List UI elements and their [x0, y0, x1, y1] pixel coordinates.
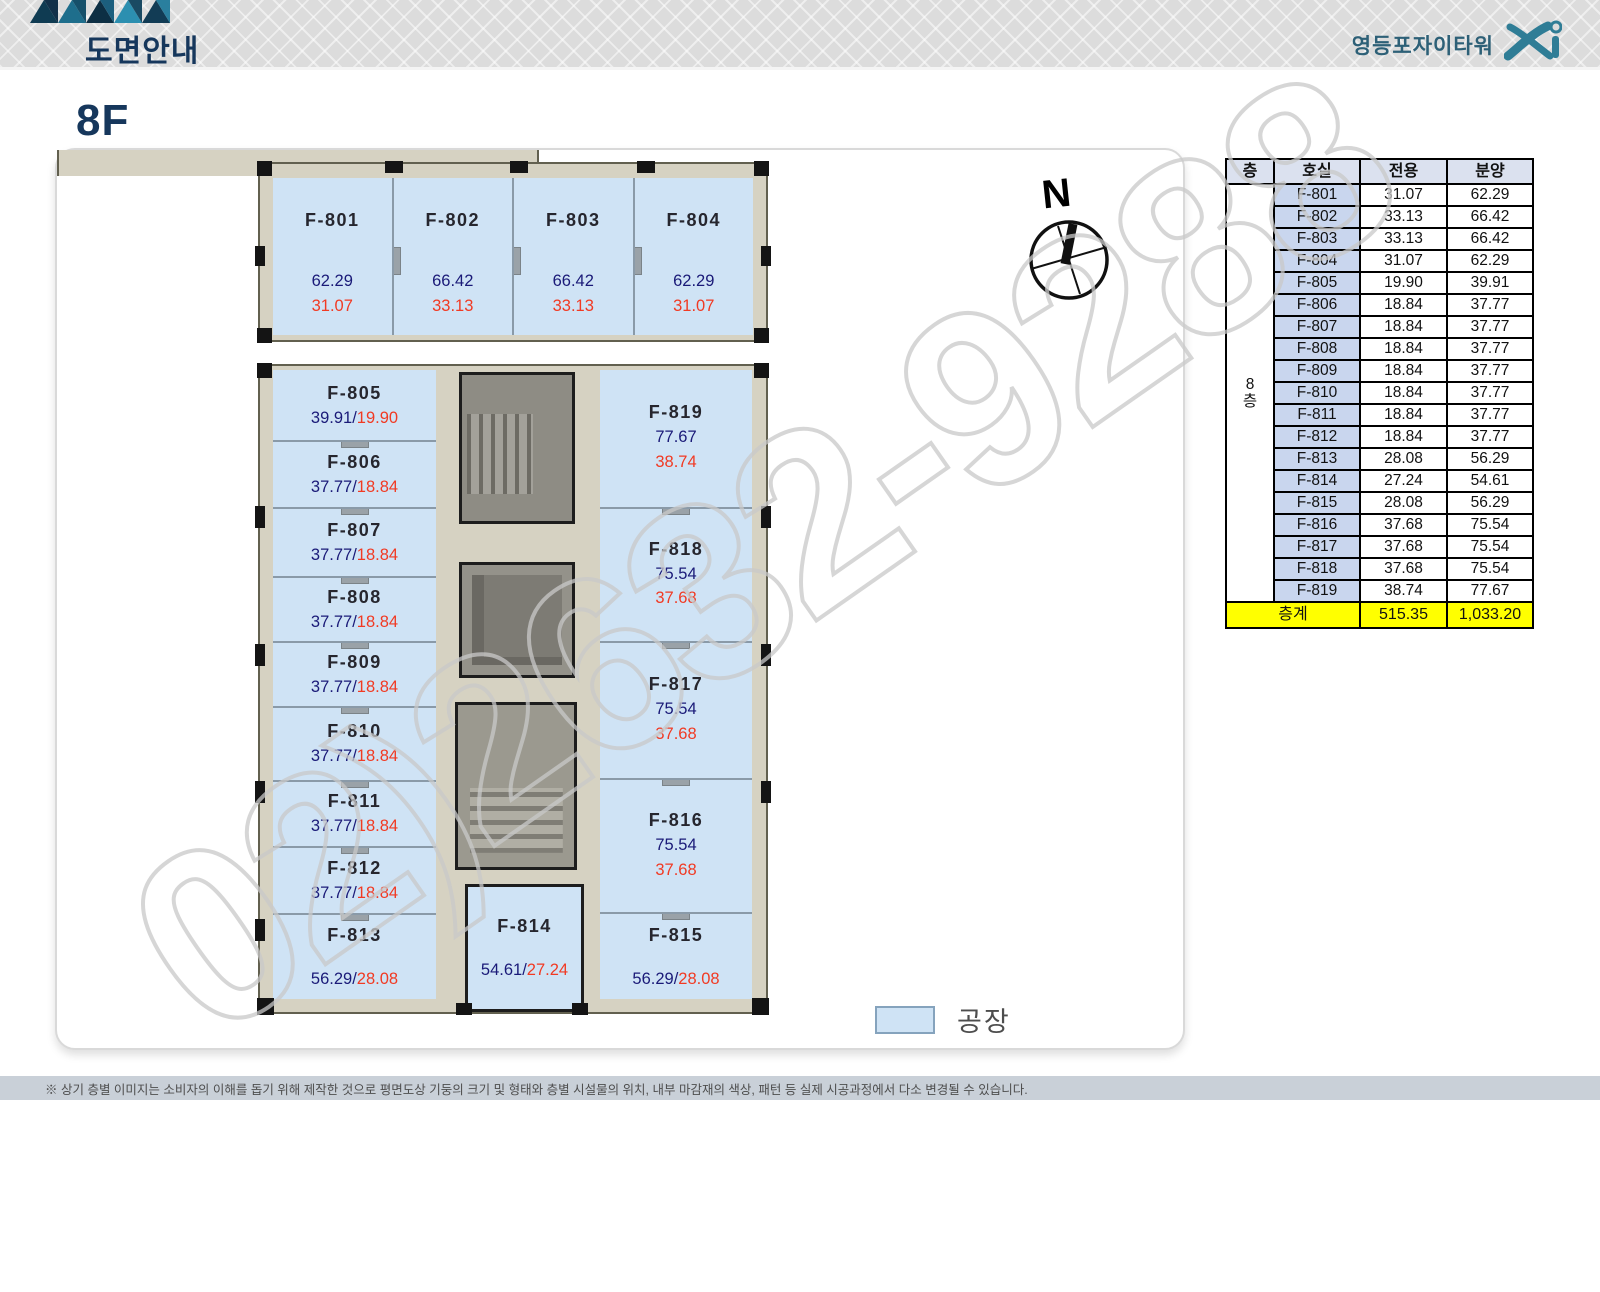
- room-cell: F-812: [1274, 426, 1360, 448]
- brand: 영등포자이타워: [1352, 18, 1562, 62]
- unit-areas: 37.77/18.84: [311, 546, 398, 565]
- footer-note: ※ 상기 층별 이미지는 소비자의 이해를 돕기 위해 제작한 것으로 평면도상…: [0, 1076, 1600, 1100]
- unit-areas: 62.2931.07: [312, 269, 353, 319]
- room-cell: F-802: [1274, 206, 1360, 228]
- unit-areas: 75.5437.68: [655, 833, 696, 883]
- exclusive-cell: 33.13: [1360, 228, 1447, 250]
- exclusive-cell: 28.08: [1360, 492, 1447, 514]
- unit-area-sale: 37.77: [311, 884, 352, 902]
- room-cell: F-819: [1274, 580, 1360, 602]
- page-title: 도면안내: [85, 26, 199, 70]
- unit-area-exclusive: 38.74: [655, 450, 696, 475]
- unit-name: F-813: [327, 925, 382, 946]
- brand-name: 영등포자이타워: [1352, 20, 1494, 60]
- unit-name: F-803: [546, 210, 601, 231]
- sale-cell: 37.77: [1447, 426, 1533, 448]
- unit-area-sale: 37.77: [311, 546, 352, 564]
- floor-plan: F-80162.2931.07F-80266.4233.13F-80366.42…: [57, 150, 1183, 1048]
- unit-name: F-804: [666, 210, 721, 231]
- unit-name: F-806: [327, 452, 382, 473]
- unit-area-sale: 39.91: [311, 409, 352, 427]
- total-row: 층계 515.35 1,033.20: [1226, 602, 1533, 628]
- unit-area-exclusive: 18.84: [357, 884, 398, 902]
- unit-name: F-802: [425, 210, 480, 231]
- room-cell: F-801: [1274, 184, 1360, 206]
- exclusive-cell: 31.07: [1360, 250, 1447, 272]
- exclusive-cell: 18.84: [1360, 426, 1447, 448]
- floor-heading: 8F: [76, 96, 129, 146]
- unit-area-exclusive: 27.24: [527, 961, 568, 979]
- unit-F-811: F-81137.77/18.84: [273, 782, 436, 846]
- header-band: 도면안내 영등포자이타워: [0, 0, 1600, 70]
- unit-areas: 66.4233.13: [432, 269, 473, 319]
- left-units: F-80539.91/19.90F-80637.77/18.84F-80737.…: [273, 370, 436, 999]
- unit-area-sale: 62.29: [673, 269, 714, 294]
- brand-triangles-icon: [30, 0, 170, 23]
- unit-name: F-801: [305, 210, 360, 231]
- unit-area-sale: 37.77: [311, 478, 352, 496]
- unit-F-813: F-81356.29/28.08: [273, 915, 436, 999]
- unit-areas: 77.6738.74: [655, 425, 696, 475]
- unit-areas: 56.29/28.08: [632, 970, 719, 989]
- area-table-body: 8층F-80131.0762.29F-80233.1366.42F-80333.…: [1226, 184, 1533, 602]
- sale-cell: 66.42: [1447, 206, 1533, 228]
- sale-cell: 37.77: [1447, 382, 1533, 404]
- unit-F-816: F-81675.5437.68: [600, 780, 752, 912]
- unit-F-807: F-80737.77/18.84: [273, 509, 436, 576]
- unit-areas: 37.77/18.84: [311, 817, 398, 836]
- unit-name: F-805: [327, 383, 382, 404]
- exclusive-cell: 18.84: [1360, 360, 1447, 382]
- unit-F-809: F-80937.77/18.84: [273, 643, 436, 705]
- unit-area-exclusive: 18.84: [357, 678, 398, 696]
- exclusive-cell: 33.13: [1360, 206, 1447, 228]
- sale-cell: 77.67: [1447, 580, 1533, 602]
- unit-area-sale: 37.77: [311, 747, 352, 765]
- unit-area-sale: 62.29: [312, 269, 353, 294]
- sale-cell: 62.29: [1447, 250, 1533, 272]
- sale-cell: 66.42: [1447, 228, 1533, 250]
- unit-area-sale: 37.77: [311, 613, 352, 631]
- unit-area-exclusive: 28.08: [678, 970, 719, 988]
- legend-label: 공장: [957, 1000, 1011, 1039]
- exclusive-cell: 27.24: [1360, 470, 1447, 492]
- unit-F-817: F-81775.5437.68: [600, 643, 752, 778]
- unit-name: F-810: [327, 721, 382, 742]
- exclusive-cell: 37.68: [1360, 514, 1447, 536]
- area-table-wrap: 층 호실 전용 분양 8층F-80131.0762.29F-80233.1366…: [1225, 158, 1534, 629]
- unit-F-804: F-80462.2931.07: [635, 178, 754, 335]
- unit-name: F-807: [327, 520, 382, 541]
- unit-name: F-808: [327, 587, 382, 608]
- top-units: F-80162.2931.07F-80266.4233.13F-80366.42…: [273, 178, 753, 335]
- floor-merged-cell: 8층: [1226, 184, 1274, 602]
- sale-cell: 37.77: [1447, 360, 1533, 382]
- unit-F-818: F-81875.5437.68: [600, 509, 752, 640]
- room-cell: F-809: [1274, 360, 1360, 382]
- unit-area-exclusive: 18.84: [357, 747, 398, 765]
- room-cell: F-817: [1274, 536, 1360, 558]
- unit-name: F-814: [497, 916, 552, 937]
- unit-area-exclusive: 37.68: [655, 586, 696, 611]
- core-utility-block: [455, 702, 577, 870]
- room-cell: F-815: [1274, 492, 1360, 514]
- unit-area-exclusive: 18.84: [357, 546, 398, 564]
- unit-F-814-slot: F-81454.61/27.24: [465, 884, 584, 1012]
- header-exclusive: 전용: [1360, 159, 1447, 184]
- unit-F-805: F-80539.91/19.90: [273, 370, 436, 440]
- unit-F-819: F-81977.6738.74: [600, 370, 752, 507]
- header-room: 호실: [1274, 159, 1360, 184]
- unit-area-sale: 56.29: [311, 970, 352, 988]
- unit-area-sale: 37.77: [311, 678, 352, 696]
- unit-area-exclusive: 31.07: [312, 294, 353, 319]
- room-cell: F-803: [1274, 228, 1360, 250]
- unit-area-sale: 56.29: [632, 970, 673, 988]
- unit-F-810: F-81037.77/18.84: [273, 708, 436, 780]
- unit-area-exclusive: 18.84: [357, 478, 398, 496]
- sale-cell: 75.54: [1447, 558, 1533, 580]
- unit-F-806: F-80637.77/18.84: [273, 442, 436, 506]
- unit-area-sale: 75.54: [655, 833, 696, 858]
- unit-areas: 62.2931.07: [673, 269, 714, 319]
- sale-cell: 56.29: [1447, 492, 1533, 514]
- xi-logo-icon: [1504, 18, 1562, 62]
- unit-area-exclusive: 31.07: [673, 294, 714, 319]
- unit-area-exclusive: 33.13: [553, 294, 594, 319]
- unit-name: F-819: [649, 402, 704, 423]
- exclusive-cell: 37.68: [1360, 536, 1447, 558]
- unit-area-exclusive: 28.08: [357, 970, 398, 988]
- room-cell: F-804: [1274, 250, 1360, 272]
- core-stairs-block: [459, 372, 575, 524]
- compass: N: [1012, 172, 1122, 322]
- exclusive-cell: 18.84: [1360, 382, 1447, 404]
- room-cell: F-816: [1274, 514, 1360, 536]
- exclusive-cell: 37.68: [1360, 558, 1447, 580]
- room-cell: F-818: [1274, 558, 1360, 580]
- exclusive-cell: 18.84: [1360, 404, 1447, 426]
- unit-F-808: F-80837.77/18.84: [273, 578, 436, 641]
- unit-F-801: F-80162.2931.07: [273, 178, 392, 335]
- sale-cell: 37.77: [1447, 316, 1533, 338]
- room-cell: F-811: [1274, 404, 1360, 426]
- sale-cell: 37.77: [1447, 404, 1533, 426]
- unit-areas: 75.5437.68: [655, 697, 696, 747]
- legend-swatch: [875, 1006, 935, 1034]
- header-sale: 분양: [1447, 159, 1533, 184]
- unit-areas: 37.77/18.84: [311, 613, 398, 632]
- table-header-row: 층 호실 전용 분양: [1226, 159, 1533, 184]
- room-cell: F-807: [1274, 316, 1360, 338]
- room-cell: F-806: [1274, 294, 1360, 316]
- compass-n-label: N: [1040, 171, 1073, 219]
- right-units: F-81977.6738.74F-81875.5437.68F-81775.54…: [600, 370, 752, 999]
- unit-areas: 37.77/18.84: [311, 478, 398, 497]
- unit-area-sale: 66.42: [432, 269, 473, 294]
- sale-cell: 37.77: [1447, 294, 1533, 316]
- sale-cell: 39.91: [1447, 272, 1533, 294]
- exclusive-cell: 28.08: [1360, 448, 1447, 470]
- unit-name: F-816: [649, 810, 704, 831]
- plan-panel: F-80162.2931.07F-80266.4233.13F-80366.42…: [55, 148, 1185, 1050]
- room-cell: F-808: [1274, 338, 1360, 360]
- unit-name: F-817: [649, 674, 704, 695]
- exclusive-cell: 18.84: [1360, 338, 1447, 360]
- unit-area-sale: 75.54: [655, 697, 696, 722]
- unit-areas: 39.91/19.90: [311, 409, 398, 428]
- sale-cell: 75.54: [1447, 536, 1533, 558]
- header-floor: 층: [1226, 159, 1274, 184]
- total-sale: 1,033.20: [1447, 602, 1533, 628]
- core-elevator-block: [459, 562, 575, 678]
- unit-name: F-812: [327, 858, 382, 879]
- exclusive-cell: 18.84: [1360, 294, 1447, 316]
- area-table: 층 호실 전용 분양 8층F-80131.0762.29F-80233.1366…: [1225, 158, 1534, 629]
- room-cell: F-805: [1274, 272, 1360, 294]
- unit-F-803: F-80366.4233.13: [514, 178, 633, 335]
- unit-name: F-815: [649, 925, 704, 946]
- room-cell: F-810: [1274, 382, 1360, 404]
- top-block: F-80162.2931.07F-80266.4233.13F-80366.42…: [258, 162, 768, 342]
- room-cell: F-813: [1274, 448, 1360, 470]
- unit-area-sale: 75.54: [655, 562, 696, 587]
- unit-area-sale: 37.77: [311, 817, 352, 835]
- table-row: 8층F-80131.0762.29: [1226, 184, 1533, 206]
- unit-areas: 37.77/18.84: [311, 884, 398, 903]
- sale-cell: 56.29: [1447, 448, 1533, 470]
- exclusive-cell: 19.90: [1360, 272, 1447, 294]
- unit-areas: 54.61/27.24: [481, 961, 568, 980]
- unit-F-802: F-80266.4233.13: [394, 178, 513, 335]
- unit-F-812: F-81237.77/18.84: [273, 848, 436, 913]
- unit-areas: 75.5437.68: [655, 562, 696, 612]
- legend: 공장: [875, 1000, 1011, 1039]
- unit-name: F-811: [328, 791, 382, 812]
- exclusive-cell: 31.07: [1360, 184, 1447, 206]
- total-label: 층계: [1226, 602, 1360, 628]
- unit-area-sale: 54.61: [481, 961, 522, 979]
- exclusive-cell: 18.84: [1360, 316, 1447, 338]
- unit-area-exclusive: 18.84: [357, 817, 398, 835]
- unit-name: F-809: [327, 652, 382, 673]
- total-exclusive: 515.35: [1360, 602, 1447, 628]
- sale-cell: 62.29: [1447, 184, 1533, 206]
- unit-areas: 37.77/18.84: [311, 747, 398, 766]
- exclusive-cell: 38.74: [1360, 580, 1447, 602]
- unit-areas: 66.4233.13: [553, 269, 594, 319]
- lower-block: F-80539.91/19.90F-80637.77/18.84F-80737.…: [258, 364, 768, 1014]
- unit-name: F-818: [649, 539, 704, 560]
- unit-area-exclusive: 18.84: [357, 613, 398, 631]
- unit-area-sale: 77.67: [655, 425, 696, 450]
- sale-cell: 75.54: [1447, 514, 1533, 536]
- unit-area-exclusive: 37.68: [655, 858, 696, 883]
- unit-F-815: F-81556.29/28.08: [600, 914, 752, 999]
- unit-area-exclusive: 33.13: [432, 294, 473, 319]
- unit-area-exclusive: 19.90: [357, 409, 398, 427]
- room-cell: F-814: [1274, 470, 1360, 492]
- unit-area-exclusive: 37.68: [655, 722, 696, 747]
- unit-areas: 56.29/28.08: [311, 970, 398, 989]
- unit-F-814: F-81454.61/27.24: [468, 887, 581, 1009]
- unit-area-sale: 66.42: [553, 269, 594, 294]
- sale-cell: 37.77: [1447, 338, 1533, 360]
- sale-cell: 54.61: [1447, 470, 1533, 492]
- unit-areas: 37.77/18.84: [311, 678, 398, 697]
